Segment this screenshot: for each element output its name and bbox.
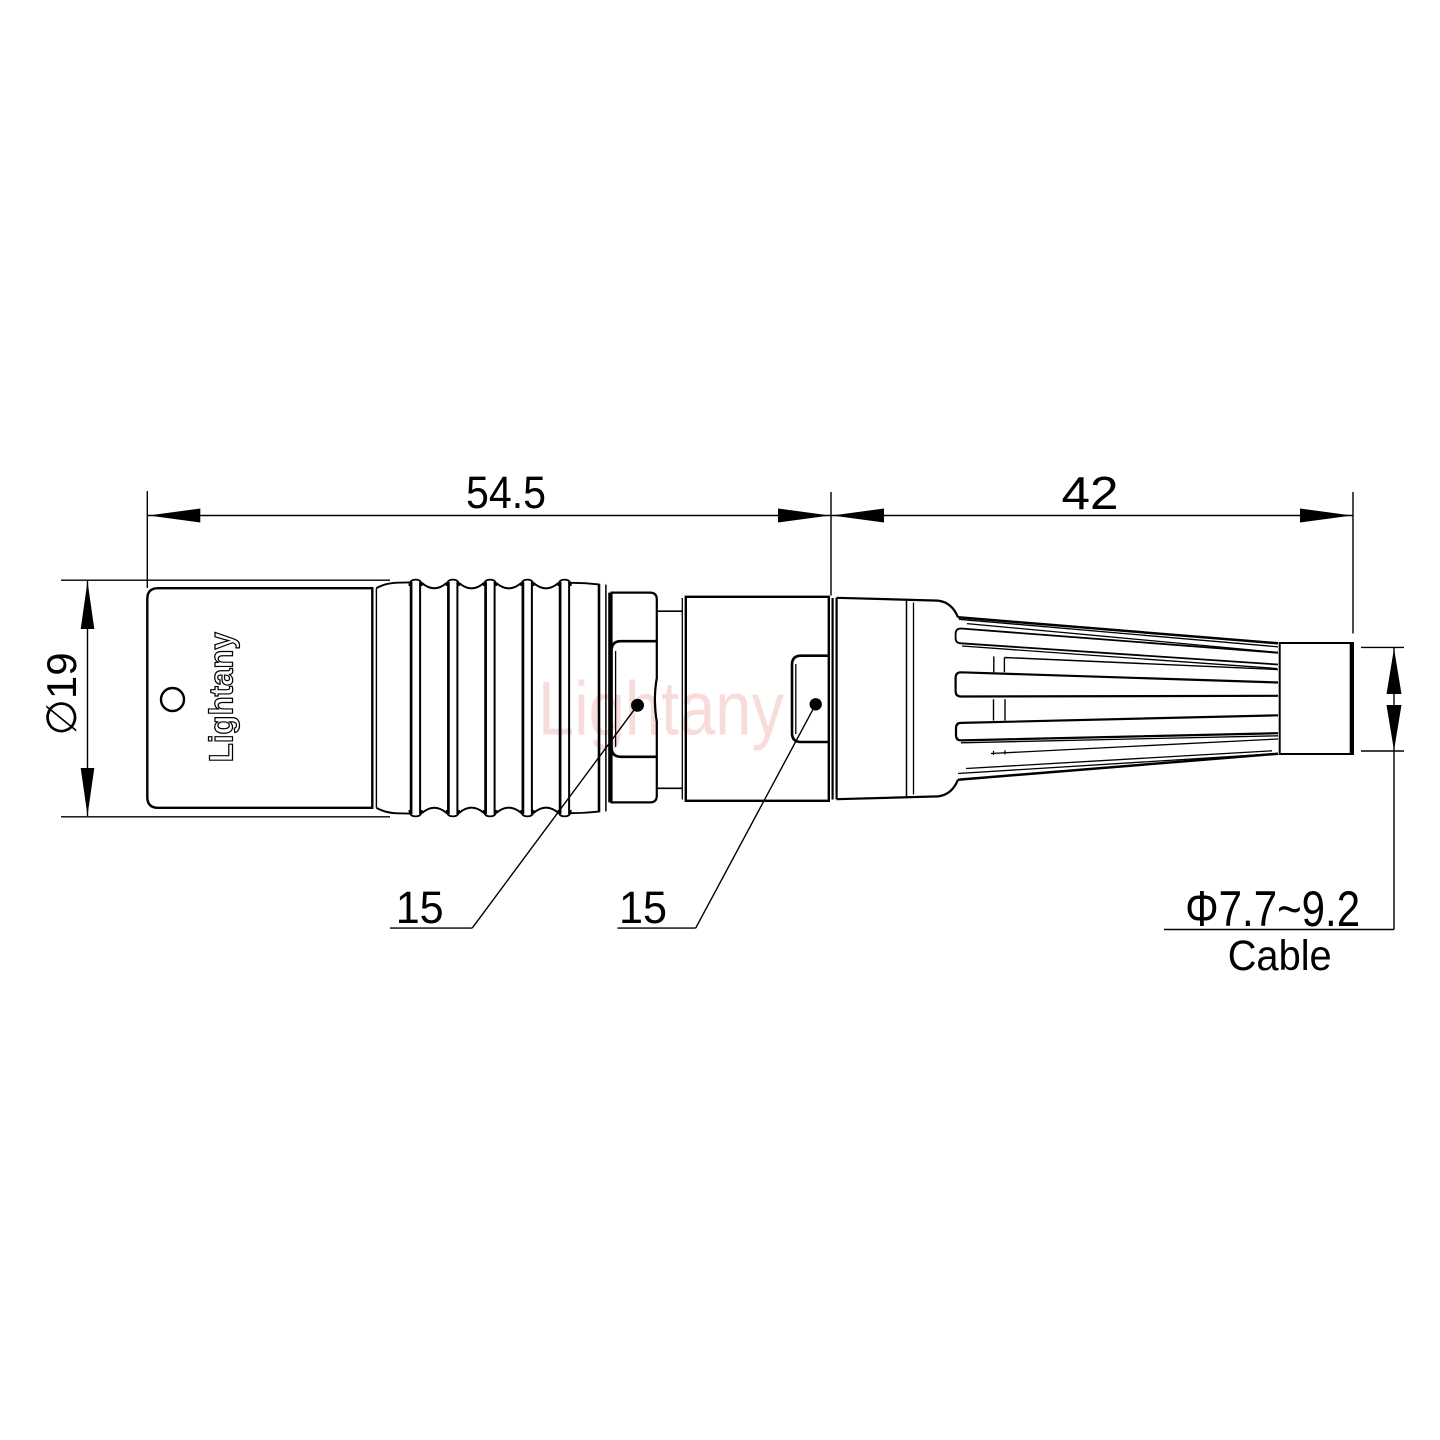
svg-text:∅19: ∅19 [38,652,85,735]
svg-text:Lightany: Lightany [538,667,784,752]
svg-text:15: 15 [619,882,667,933]
svg-text:Φ7.7~9.2: Φ7.7~9.2 [1185,881,1360,937]
svg-text:54.5: 54.5 [466,467,546,518]
svg-text:15: 15 [396,882,444,933]
svg-text:Lightany: Lightany [203,632,240,763]
svg-text:Cable: Cable [1228,932,1332,980]
svg-text:42: 42 [1062,467,1119,519]
